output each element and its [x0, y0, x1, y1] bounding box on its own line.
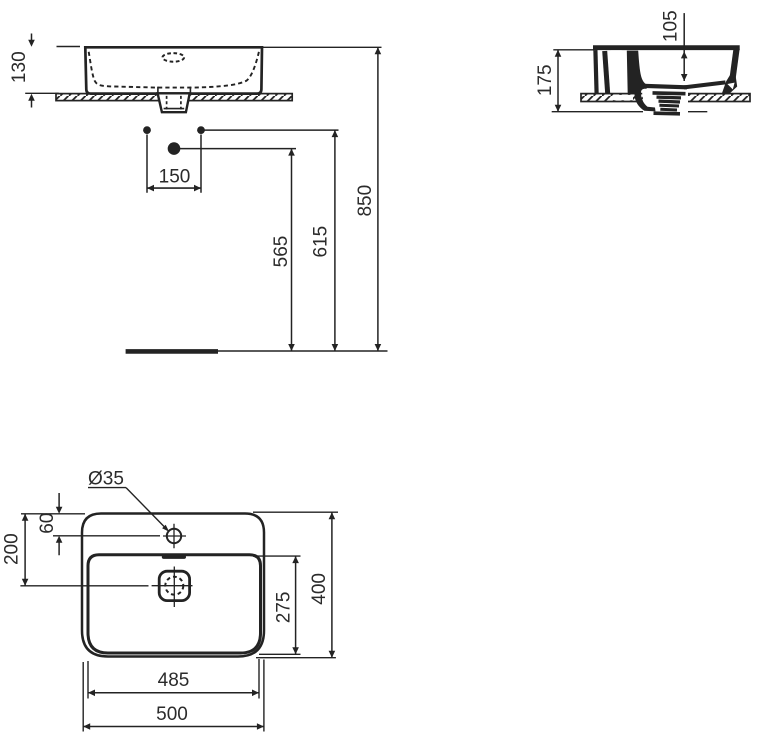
svg-text:485: 485 [158, 670, 190, 691]
svg-text:105: 105 [660, 10, 681, 42]
svg-text:200: 200 [2, 533, 23, 565]
svg-text:400: 400 [309, 573, 330, 605]
svg-text:615: 615 [310, 226, 331, 258]
svg-text:500: 500 [156, 704, 188, 725]
svg-text:Ø35: Ø35 [88, 469, 124, 490]
svg-text:60: 60 [37, 513, 58, 534]
svg-text:130: 130 [9, 51, 30, 83]
svg-text:565: 565 [271, 236, 292, 268]
svg-text:150: 150 [159, 167, 191, 188]
svg-text:850: 850 [355, 185, 376, 217]
svg-text:175: 175 [535, 64, 556, 96]
svg-text:275: 275 [273, 592, 294, 624]
